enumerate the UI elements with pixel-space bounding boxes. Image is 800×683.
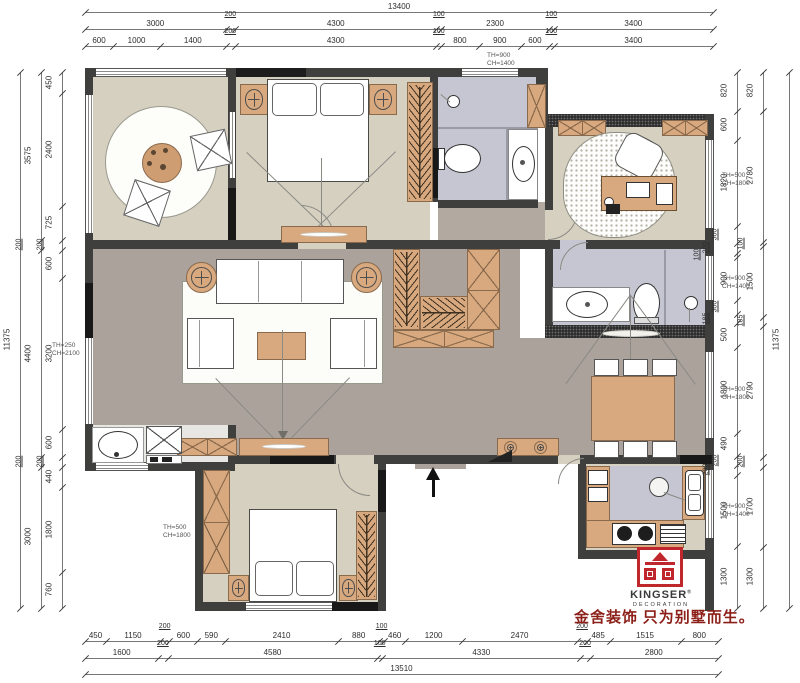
right-inner-label: 1300 bbox=[720, 557, 729, 597]
bottom-mid-label: 4580 bbox=[250, 648, 294, 657]
closet-cabinet-cell bbox=[468, 250, 499, 290]
bath-cabinet bbox=[527, 84, 546, 128]
sink-basin bbox=[688, 494, 701, 511]
left-inner-label: 440 bbox=[45, 457, 54, 497]
bottom-inner-label: 2470 bbox=[498, 631, 542, 640]
right-mid-tick bbox=[760, 605, 767, 612]
entry-arrow bbox=[426, 467, 440, 497]
top-mid-label: 100 bbox=[417, 10, 461, 19]
washer-cell bbox=[147, 427, 181, 453]
top-mid-label: 3400 bbox=[611, 19, 655, 28]
left-mid-label: 200 bbox=[15, 225, 24, 265]
th-ch-line: CH=1800 bbox=[722, 394, 750, 402]
door-gap-bedroom2 bbox=[336, 455, 374, 464]
fridge bbox=[588, 487, 608, 502]
logo-knot-dot bbox=[666, 572, 670, 576]
right-mid-label: 200 bbox=[737, 441, 746, 481]
window-bedroom2 bbox=[246, 602, 332, 611]
burner bbox=[638, 526, 653, 541]
th-ch-line: CH=1800 bbox=[722, 180, 750, 188]
right-total-tick bbox=[786, 605, 793, 612]
right-inner-label: 200 bbox=[702, 450, 711, 490]
left-inner-label: 725 bbox=[45, 203, 54, 243]
nightstand-crosshair bbox=[342, 579, 354, 596]
th-ch-line: CH=1400 bbox=[722, 511, 750, 519]
wall-bedroom2-left bbox=[195, 462, 203, 611]
printer bbox=[656, 183, 673, 205]
top-total-tick bbox=[710, 9, 717, 16]
closet-rack bbox=[356, 511, 377, 600]
table-dot bbox=[163, 148, 168, 153]
bench-detail-crosshair bbox=[537, 444, 545, 452]
top-total-label: 13400 bbox=[377, 2, 421, 11]
bottom-total-line bbox=[85, 674, 718, 675]
left-mid-label: 4400 bbox=[24, 333, 33, 373]
armchair bbox=[330, 318, 377, 369]
window-laundry bbox=[96, 462, 148, 471]
top-mid-line bbox=[85, 29, 713, 30]
logo-eave-icon bbox=[645, 562, 675, 565]
laundry-item bbox=[150, 457, 158, 462]
dresser-detail bbox=[300, 232, 348, 237]
table-dot bbox=[151, 150, 156, 155]
top-inner-label: 3400 bbox=[611, 36, 655, 45]
th-ch-line: TH=900 bbox=[722, 275, 750, 283]
th-ch-label: TH=900CH=1400 bbox=[487, 52, 515, 68]
lounge-chair-cell bbox=[191, 130, 231, 170]
shower-pole bbox=[689, 308, 690, 322]
bottom-mid-label: 2800 bbox=[632, 648, 676, 657]
top-inner-label: 1000 bbox=[115, 36, 159, 45]
kitchen-floor bbox=[610, 466, 684, 520]
nightstand bbox=[240, 84, 268, 115]
sink-basin bbox=[688, 474, 701, 491]
right-inner-label: 185 bbox=[702, 298, 711, 338]
left-inner-tick bbox=[59, 605, 66, 612]
dining-chair bbox=[623, 441, 648, 458]
drain bbox=[520, 160, 525, 165]
window-left-leisure bbox=[85, 95, 93, 233]
th-ch-label: TH=500CH=1800 bbox=[722, 172, 750, 188]
right-mid-label: 100 bbox=[737, 223, 746, 263]
side-table-crosshair bbox=[191, 267, 212, 288]
bottom-inner-label: 1200 bbox=[412, 631, 456, 640]
burner bbox=[617, 526, 632, 541]
th-ch-line: TH=500 bbox=[722, 386, 750, 394]
top-mid-label: 100 bbox=[529, 10, 573, 19]
right-inner-label: 490 bbox=[720, 424, 729, 464]
bath-cabinet-cell bbox=[528, 85, 545, 127]
wardrobe bbox=[203, 470, 230, 574]
lounge-chair bbox=[190, 129, 233, 172]
pillow bbox=[320, 83, 364, 116]
nightstand-crosshair bbox=[245, 89, 264, 110]
top-mid-label: 2300 bbox=[473, 19, 517, 28]
bath2-partition bbox=[664, 250, 666, 325]
armchair-seam bbox=[364, 320, 365, 367]
th-ch-label: TH=500CH=1800 bbox=[163, 524, 191, 540]
closet-rack bbox=[420, 296, 468, 330]
bookshelf-cell bbox=[559, 121, 582, 135]
th-ch-label: TH=250CH=2100 bbox=[52, 342, 80, 358]
table-dot bbox=[160, 164, 166, 170]
pillow bbox=[296, 561, 334, 596]
bottom-mid-line bbox=[85, 658, 718, 659]
monitor bbox=[626, 182, 650, 198]
right-inner-label: 100 bbox=[693, 235, 702, 275]
left-total-tick bbox=[17, 605, 24, 612]
th-ch-label: TH=900CH=1400 bbox=[722, 503, 750, 519]
th-ch-line: CH=1400 bbox=[487, 60, 515, 68]
th-ch-line: CH=1800 bbox=[163, 532, 191, 540]
window-top-bath bbox=[462, 68, 518, 77]
right-total-label: 11375 bbox=[772, 320, 781, 360]
sliding-door-leisure bbox=[229, 112, 235, 178]
hall-cabinet-cell bbox=[178, 439, 207, 455]
wardrobe-rack bbox=[407, 82, 433, 202]
bottom-mid-label: 4330 bbox=[459, 648, 503, 657]
hall-cabinet-cell bbox=[207, 439, 236, 455]
bottom-inner-label: 2410 bbox=[260, 631, 304, 640]
window-right-dining bbox=[705, 352, 714, 438]
bookshelf-cell bbox=[685, 121, 707, 135]
wall-living-top bbox=[85, 240, 438, 249]
right-inner-label: 300 bbox=[711, 287, 720, 327]
th-ch-line: TH=900 bbox=[722, 503, 750, 511]
left-inner-label: 200 bbox=[36, 441, 45, 481]
bench-detail bbox=[534, 441, 547, 454]
top-mid-tick bbox=[710, 26, 717, 33]
left-inner-label: 200 bbox=[36, 225, 45, 265]
closet-rack bbox=[393, 249, 420, 330]
th-ch-line: TH=900 bbox=[487, 52, 515, 60]
pillow bbox=[255, 561, 293, 596]
washer bbox=[146, 426, 182, 454]
bottom-mid-label: 1600 bbox=[100, 648, 144, 657]
bench-detail-crosshair bbox=[507, 444, 515, 452]
bottom-mid-tick bbox=[715, 655, 722, 662]
leader-line bbox=[282, 330, 283, 438]
closet-cabinet-cell bbox=[394, 331, 444, 347]
top-inner-label: 200 bbox=[208, 27, 252, 36]
wall-bath-bottom bbox=[438, 200, 538, 208]
fridge bbox=[588, 470, 608, 485]
window-top-leisure bbox=[96, 68, 226, 77]
bottom-inner-label: 1515 bbox=[623, 631, 667, 640]
left-mid-line bbox=[41, 72, 42, 608]
nightstand-crosshair bbox=[232, 579, 246, 596]
top-mid-label: 4300 bbox=[314, 19, 358, 28]
closet-cabinet bbox=[467, 249, 500, 330]
left-inner-label: 450 bbox=[45, 62, 54, 102]
wardrobe-cell bbox=[204, 522, 229, 573]
left-mid-label: 3000 bbox=[24, 517, 33, 557]
wall-living-bottom-dark bbox=[270, 455, 334, 464]
toilet bbox=[444, 144, 481, 173]
side-table bbox=[186, 262, 217, 293]
closet-cabinet-cell bbox=[468, 290, 499, 330]
logo-brand-text: KINGSER® bbox=[605, 589, 717, 601]
th-ch-line: TH=500 bbox=[163, 524, 191, 532]
table-dot bbox=[147, 161, 152, 166]
right-mid-line bbox=[763, 72, 764, 608]
th-ch-label: TH=500CH=1800 bbox=[722, 386, 750, 402]
brand-slogan: 金舍装饰 只为别墅而生。 bbox=[574, 606, 755, 627]
bottom-total-label: 13510 bbox=[380, 664, 424, 673]
right-inner-label: 360 bbox=[711, 214, 720, 254]
top-inner-label: 800 bbox=[438, 36, 482, 45]
bottom-mid-label: 200 bbox=[563, 639, 607, 648]
right-inner-label: 600 bbox=[720, 105, 729, 145]
wall-top-dark bbox=[236, 68, 306, 77]
wall-leisure-divider-dark bbox=[228, 188, 236, 242]
sofa-seam bbox=[301, 261, 302, 302]
sofa-seam bbox=[258, 261, 259, 302]
bottom-mid-label: 200 bbox=[141, 639, 185, 648]
logo-roof-icon bbox=[652, 552, 668, 561]
pillow bbox=[272, 83, 317, 116]
top-inner-label: 100 bbox=[529, 27, 573, 36]
left-inner-label: 1800 bbox=[45, 509, 54, 549]
nightstand bbox=[228, 575, 249, 601]
left-mid-label: 3575 bbox=[24, 136, 33, 176]
top-mid-label: 200 bbox=[208, 10, 252, 19]
bookshelf bbox=[662, 120, 708, 136]
bottom-inner-label: 100 bbox=[360, 622, 404, 631]
th-ch-line: CH=1400 bbox=[722, 283, 750, 291]
th-ch-label: TH=900CH=1400 bbox=[722, 275, 750, 291]
nightstand-crosshair bbox=[374, 89, 393, 110]
bookshelf-cell bbox=[663, 121, 685, 135]
floor-plan-canvas: 1340030002004300100230010034006001000140… bbox=[0, 0, 800, 683]
right-inner-label: 500 bbox=[720, 315, 729, 355]
logo-knot-dot bbox=[648, 572, 652, 576]
top-total-line bbox=[85, 12, 713, 13]
closet-cabinet bbox=[393, 330, 494, 348]
dining-table bbox=[591, 376, 675, 441]
side-table-crosshair bbox=[356, 267, 377, 288]
shower-head bbox=[684, 296, 698, 310]
sofa bbox=[216, 259, 344, 304]
bottom-inner-label: 800 bbox=[677, 631, 721, 640]
top-inner-line bbox=[85, 46, 713, 47]
top-inner-label: 100 bbox=[417, 27, 461, 36]
th-ch-line: TH=250 bbox=[52, 342, 80, 350]
left-total-label: 11375 bbox=[3, 320, 12, 360]
th-ch-line: TH=500 bbox=[722, 172, 750, 180]
kingser-logo-mark bbox=[637, 547, 683, 587]
window-left-living bbox=[85, 338, 93, 424]
right-mid-label: 820 bbox=[746, 71, 755, 111]
left-mid-label: 200 bbox=[15, 441, 24, 481]
wall-bedroom2-right-dark bbox=[378, 470, 386, 512]
dining-chair bbox=[652, 359, 677, 376]
armchair-seam bbox=[199, 320, 200, 367]
right-inner-label: 200 bbox=[702, 227, 711, 267]
left-total-line bbox=[20, 72, 21, 608]
bottom-inner-label: 200 bbox=[143, 622, 187, 631]
top-inner-label: 1400 bbox=[171, 36, 215, 45]
dish-rack bbox=[660, 524, 686, 544]
nightstand bbox=[369, 84, 397, 115]
hall-cabinet bbox=[177, 438, 237, 456]
left-inner-line bbox=[62, 72, 63, 608]
top-inner-label: 4300 bbox=[314, 36, 358, 45]
right-mid-label: 1300 bbox=[746, 557, 755, 597]
entry-arrow-stem bbox=[432, 479, 435, 497]
side-table bbox=[351, 262, 382, 293]
top-mid-label: 3000 bbox=[133, 19, 177, 28]
armchair bbox=[187, 318, 234, 369]
leader-line bbox=[321, 158, 322, 236]
drain bbox=[585, 302, 590, 307]
bottom-mid-label: 100 bbox=[358, 639, 402, 648]
tv bbox=[262, 444, 306, 449]
right-inner-label: 200 bbox=[711, 440, 720, 480]
dining-chair bbox=[652, 441, 677, 458]
closet-cabinet-cell bbox=[444, 331, 494, 347]
dining-chair bbox=[594, 359, 619, 376]
keyboard bbox=[606, 204, 620, 214]
dining-chair bbox=[623, 359, 648, 376]
wardrobe-cell bbox=[204, 471, 229, 522]
drain bbox=[114, 452, 119, 457]
bottom-total-tick bbox=[715, 671, 722, 678]
registered-mark: ® bbox=[687, 589, 692, 595]
right-mid-label: 185 bbox=[737, 301, 746, 341]
top-inner-tick bbox=[710, 43, 717, 50]
dining-chair bbox=[594, 441, 619, 458]
left-inner-label: 760 bbox=[45, 570, 54, 610]
left-inner-label: 2400 bbox=[45, 129, 54, 169]
laundry-item bbox=[162, 457, 172, 462]
pendant-light bbox=[602, 330, 660, 337]
left-inner-label: 600 bbox=[45, 244, 54, 284]
th-ch-line: CH=2100 bbox=[52, 350, 80, 358]
right-total-line bbox=[789, 72, 790, 608]
